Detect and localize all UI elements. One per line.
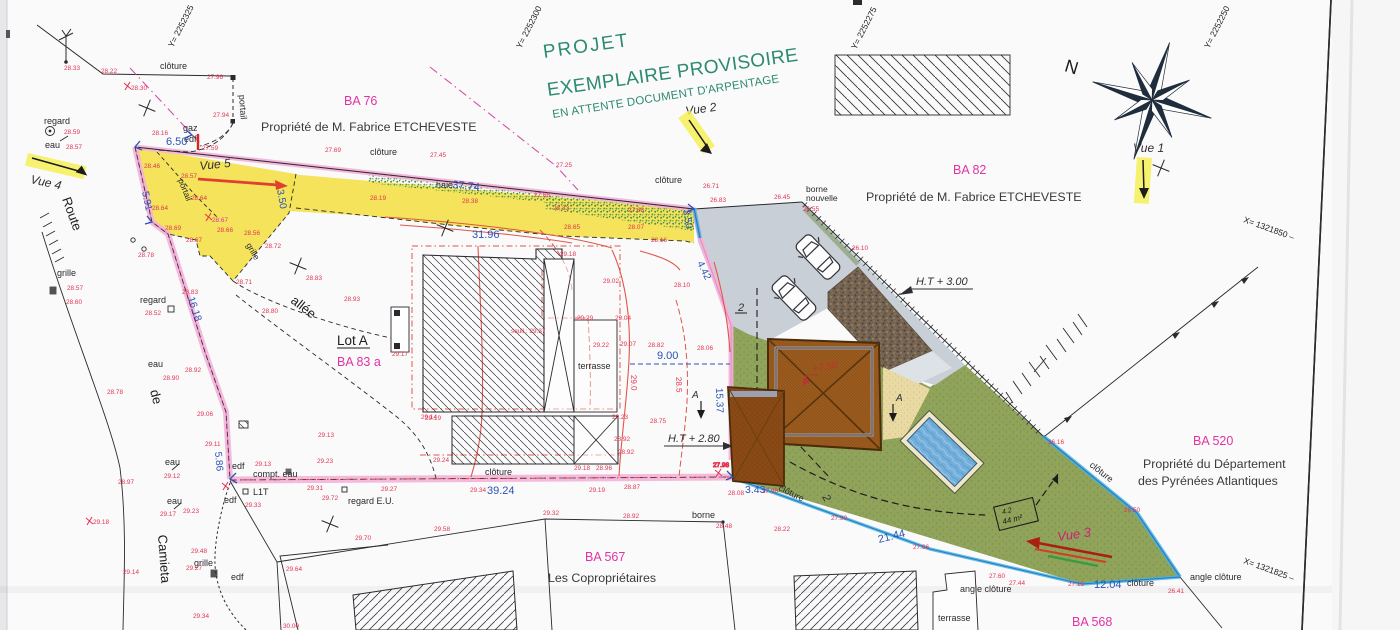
svg-text:29.31: 29.31: [307, 485, 323, 492]
svg-text:27.60: 27.60: [989, 573, 1005, 580]
svg-text:29.22: 29.22: [593, 342, 609, 349]
svg-text:borne: borne: [692, 510, 715, 520]
svg-text:BA 76: BA 76: [344, 94, 377, 108]
svg-text:29.27: 29.27: [186, 565, 202, 572]
svg-text:A: A: [895, 393, 903, 404]
svg-text:28.97: 28.97: [118, 479, 134, 486]
svg-text:28.57: 28.57: [66, 144, 82, 151]
svg-text:regard E.U.: regard E.U.: [348, 496, 394, 506]
svg-text:28.83: 28.83: [182, 289, 198, 296]
svg-text:39.24: 39.24: [487, 485, 515, 497]
svg-text:28.92: 28.92: [185, 367, 201, 374]
svg-text:29.13: 29.13: [318, 432, 334, 439]
svg-text:27.94: 27.94: [213, 112, 229, 119]
svg-text:28.82: 28.82: [648, 342, 664, 349]
svg-text:26.41: 26.41: [1168, 588, 1184, 595]
svg-text:28.90: 28.90: [163, 375, 179, 382]
svg-text:28.65: 28.65: [564, 224, 580, 231]
svg-text:28.87: 28.87: [624, 484, 640, 491]
svg-text:BA 520: BA 520: [1193, 434, 1233, 448]
svg-text:29.32: 29.32: [543, 510, 559, 517]
svg-text:28.08: 28.08: [728, 490, 744, 497]
svg-text:edf: edf: [232, 461, 245, 471]
svg-text:28.67: 28.67: [212, 217, 228, 224]
svg-text:26.50: 26.50: [1124, 507, 1140, 514]
svg-text:28.57: 28.57: [67, 285, 83, 292]
svg-text:28.33: 28.33: [553, 205, 569, 212]
svg-text:28.78: 28.78: [107, 389, 123, 396]
svg-text:26.55: 26.55: [803, 206, 819, 213]
svg-text:26.71: 26.71: [703, 183, 719, 190]
svg-text:29.18: 29.18: [574, 465, 590, 472]
svg-text:BA 83 a: BA 83 a: [337, 355, 381, 369]
svg-text:27.96: 27.96: [207, 74, 223, 81]
svg-text:terrasse: terrasse: [938, 613, 971, 623]
svg-text:regard: regard: [140, 295, 166, 305]
svg-text:29.23: 29.23: [612, 414, 628, 421]
svg-text:30.00: 30.00: [283, 623, 299, 630]
svg-text:28.59: 28.59: [64, 129, 80, 136]
svg-text:29.24: 29.24: [433, 457, 449, 464]
svg-text:27.98: 27.98: [762, 488, 778, 495]
svg-text:27.19: 27.19: [1068, 581, 1084, 588]
svg-text:28.92: 28.92: [614, 436, 630, 443]
svg-text:26.83: 26.83: [710, 197, 726, 204]
svg-text:29.29: 29.29: [577, 315, 593, 322]
svg-text:29.23: 29.23: [183, 508, 199, 515]
svg-text:28.92: 28.92: [618, 449, 634, 456]
svg-text:Propriété du Département: Propriété du Département: [1143, 457, 1286, 471]
svg-text:28.64: 28.64: [191, 195, 207, 202]
svg-text:regard: regard: [44, 116, 70, 126]
svg-text:29.0: 29.0: [629, 375, 639, 391]
svg-text:29.27: 29.27: [381, 486, 397, 493]
svg-text:28.93: 28.93: [344, 296, 360, 303]
svg-text:29.48: 29.48: [191, 548, 207, 555]
svg-text:clôture: clôture: [1127, 578, 1154, 588]
svg-text:12.04: 12.04: [1094, 579, 1122, 591]
svg-text:28.57: 28.57: [181, 173, 197, 180]
svg-text:clôture: clôture: [160, 61, 187, 71]
svg-text:27.98: 27.98: [713, 462, 729, 469]
svg-text:seuil : 29.37: seuil : 29.37: [511, 328, 546, 335]
svg-text:9.00: 9.00: [657, 350, 678, 362]
svg-text:28.67: 28.67: [186, 237, 202, 244]
svg-text:28.33: 28.33: [64, 65, 80, 72]
svg-text:28.66: 28.66: [217, 227, 233, 234]
svg-text:28.78: 28.78: [138, 252, 154, 259]
svg-text:26.10: 26.10: [852, 245, 868, 252]
svg-text:28.16: 28.16: [651, 237, 667, 244]
svg-text:Les Copropriétaires: Les Copropriétaires: [548, 571, 656, 585]
svg-text:28.16: 28.16: [152, 130, 168, 137]
svg-text:28.92: 28.92: [623, 513, 639, 520]
svg-text:Vue 1: Vue 1: [1133, 141, 1164, 155]
svg-text:15.37: 15.37: [713, 388, 725, 414]
svg-text:H.T + 3.00: H.T + 3.00: [916, 276, 969, 288]
svg-text:angle clôture: angle clôture: [1190, 572, 1242, 582]
svg-text:clôture: clôture: [655, 175, 682, 185]
svg-text:28.48: 28.48: [716, 523, 732, 530]
svg-text:A: A: [691, 390, 699, 401]
svg-text:28.52: 28.52: [145, 310, 161, 317]
svg-text:grille: grille: [57, 268, 76, 278]
svg-text:29.33: 29.33: [245, 502, 261, 509]
svg-text:BA 568: BA 568: [1072, 615, 1112, 629]
svg-text:29.64: 29.64: [286, 566, 302, 573]
svg-text:edf: edf: [231, 572, 244, 582]
svg-text:6.50: 6.50: [166, 136, 187, 148]
svg-text:L1T: L1T: [253, 487, 269, 497]
svg-text:28.38: 28.38: [462, 198, 478, 205]
svg-text:28.10: 28.10: [674, 282, 690, 289]
svg-text:28.64: 28.64: [152, 205, 168, 212]
svg-text:29.04: 29.04: [615, 315, 631, 322]
svg-text:29.34: 29.34: [193, 613, 209, 620]
svg-text:29.12: 29.12: [164, 473, 180, 480]
svg-text:27.59: 27.59: [202, 145, 218, 152]
svg-text:28.75: 28.75: [650, 418, 666, 425]
svg-text:29.02: 29.02: [603, 278, 619, 285]
svg-text:28.22: 28.22: [101, 68, 117, 75]
svg-text:29.06: 29.06: [197, 411, 213, 418]
svg-text:29.14: 29.14: [123, 569, 139, 576]
svg-text:29.17: 29.17: [160, 511, 176, 518]
svg-text:28.71: 28.71: [236, 279, 252, 286]
svg-text:Propriété de M. Fabrice ETCHEV: Propriété de M. Fabrice ETCHEVESTE: [866, 190, 1082, 204]
svg-text:29.18: 29.18: [560, 251, 576, 258]
svg-text:27.68: 27.68: [534, 192, 550, 199]
svg-text:5.86: 5.86: [212, 451, 225, 472]
svg-text:Lot A: Lot A: [337, 333, 368, 348]
svg-text:28.56: 28.56: [244, 230, 260, 237]
svg-text:29.07: 29.07: [620, 341, 636, 348]
svg-text:29.19: 29.19: [589, 487, 605, 494]
svg-text:28.22: 28.22: [774, 526, 790, 533]
svg-text:29.70: 29.70: [355, 535, 371, 542]
svg-text:28.30: 28.30: [131, 85, 147, 92]
svg-text:clôture: clôture: [370, 147, 397, 157]
svg-text:27.68: 27.68: [628, 207, 644, 214]
svg-text:eau: eau: [45, 140, 60, 150]
svg-text:29.58: 29.58: [434, 526, 450, 533]
svg-text:29.17: 29.17: [392, 351, 408, 358]
svg-text:28.46: 28.46: [144, 163, 160, 170]
svg-text:edf: edf: [224, 495, 237, 505]
svg-text:28.5: 28.5: [674, 377, 684, 393]
svg-text:angle clôture: angle clôture: [960, 584, 1012, 594]
svg-text:27.66: 27.66: [913, 544, 929, 551]
svg-text:28.69: 28.69: [165, 225, 181, 232]
svg-text:2: 2: [737, 302, 744, 314]
svg-text:eau: eau: [148, 359, 163, 369]
svg-text:clôture: clôture: [485, 467, 512, 477]
svg-text:28.06: 28.06: [697, 345, 713, 352]
svg-text:26.45: 26.45: [774, 194, 790, 201]
svg-text:nouvelle: nouvelle: [806, 193, 838, 203]
svg-text:28.60: 28.60: [66, 299, 82, 306]
svg-text:31.96: 31.96: [472, 229, 500, 241]
svg-text:29.18: 29.18: [93, 519, 109, 526]
svg-text:29.19: 29.19: [425, 415, 441, 422]
svg-text:28.19: 28.19: [370, 195, 386, 202]
svg-text:haie: haie: [436, 180, 453, 190]
svg-text:28.80: 28.80: [262, 308, 278, 315]
svg-text:28.96: 28.96: [596, 465, 612, 472]
svg-text:27.69: 27.69: [325, 147, 341, 154]
svg-text:28.83: 28.83: [306, 275, 322, 282]
svg-text:gaz: gaz: [183, 123, 198, 133]
svg-text:27.25: 27.25: [556, 162, 572, 169]
svg-text:28.07: 28.07: [628, 224, 644, 231]
svg-text:29.34: 29.34: [470, 487, 486, 494]
svg-text:29.13: 29.13: [255, 461, 271, 468]
svg-text:27.44: 27.44: [1009, 580, 1025, 587]
svg-text:H.T + 2.80: H.T + 2.80: [668, 433, 721, 445]
svg-text:26.16: 26.16: [1048, 439, 1064, 446]
svg-text:29.72: 29.72: [322, 495, 338, 502]
svg-text:28.72: 28.72: [265, 243, 281, 250]
svg-text:BA 567: BA 567: [585, 550, 625, 564]
svg-text:29.23: 29.23: [317, 458, 333, 465]
svg-text:portail: portail: [237, 94, 249, 119]
svg-text:27.90: 27.90: [831, 515, 847, 522]
svg-text:27.45: 27.45: [430, 152, 446, 159]
svg-text:BA 82: BA 82: [953, 163, 986, 177]
svg-text:terrasse: terrasse: [578, 361, 611, 371]
svg-text:Propriété de M. Fabrice ETCHEV: Propriété de M. Fabrice ETCHEVESTE: [261, 120, 477, 134]
svg-text:29.11: 29.11: [205, 441, 221, 448]
svg-text:des Pyrénées Atlantiques: des Pyrénées Atlantiques: [1138, 474, 1278, 488]
